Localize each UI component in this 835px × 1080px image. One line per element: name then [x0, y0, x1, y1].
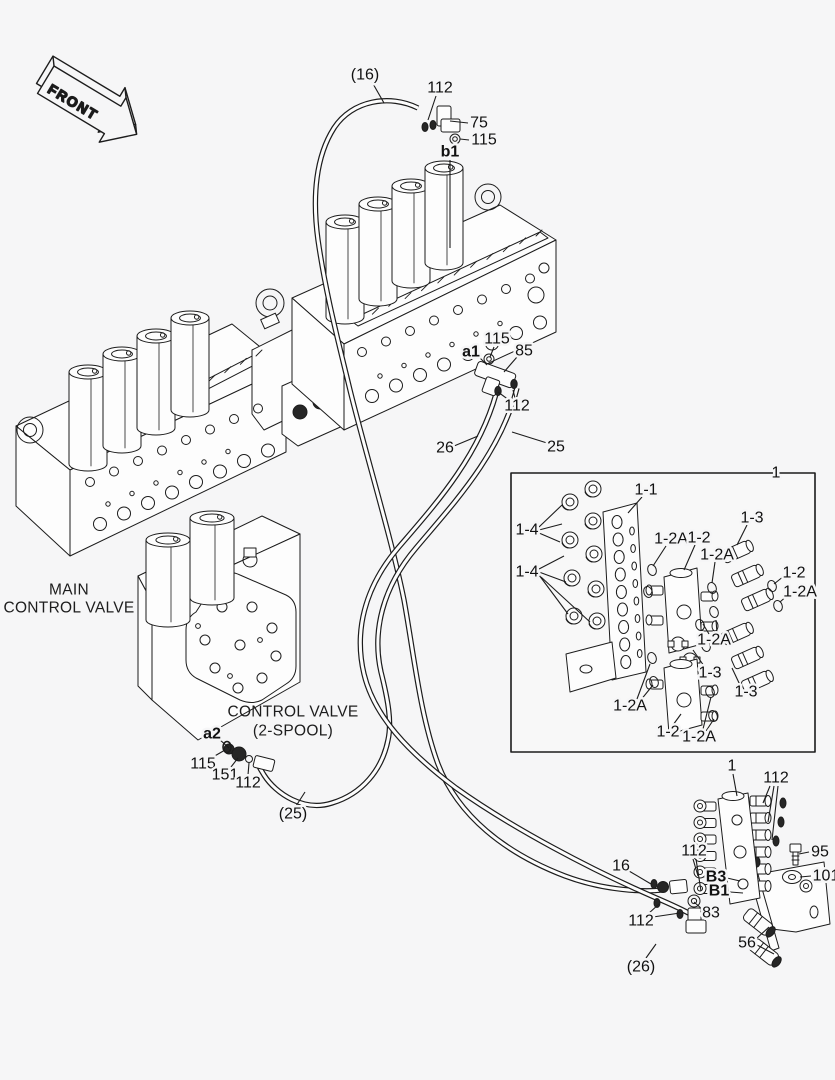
- callout-1-2A: 1-2A: [697, 632, 731, 649]
- callout-83: 83: [702, 905, 720, 922]
- callout-112: 112: [681, 843, 707, 860]
- callout-1-2: 1-2: [656, 724, 679, 741]
- callout-1-2: 1-2: [687, 530, 710, 547]
- callout-112: 112: [628, 913, 654, 930]
- valve-artwork: [16, 161, 556, 754]
- callout-112: 112: [504, 398, 530, 415]
- callout-1-4: 1-4: [515, 522, 538, 539]
- callout-26: (26): [627, 959, 655, 976]
- callout-75: 75: [470, 115, 488, 132]
- callout-b1: b1: [441, 144, 460, 161]
- main-valve-label-line1: MAIN: [49, 582, 89, 599]
- callout-1-2A: 1-2A: [700, 547, 734, 564]
- callout-95: 95: [811, 844, 829, 861]
- callout-25: 25: [547, 439, 565, 456]
- leader-line: [653, 913, 680, 917]
- leader-line: [512, 432, 547, 443]
- callout-1: 1: [728, 758, 737, 775]
- callout-112: 112: [235, 775, 261, 792]
- callout-a1: a1: [462, 344, 480, 361]
- callout-26: 26: [436, 440, 454, 457]
- callout-1-2A: 1-2A: [654, 531, 688, 548]
- leader-line: [248, 763, 249, 775]
- callout-1-3: 1-3: [698, 665, 721, 682]
- leader-line: [629, 871, 651, 884]
- callout-112: 112: [427, 80, 453, 97]
- callout-1-2A: 1-2A: [613, 698, 647, 715]
- spool-valve-label-line2: (2-SPOOL): [253, 723, 333, 740]
- callout-1-1: 1-1: [634, 482, 657, 499]
- callout-115: 115: [471, 132, 497, 149]
- washer-101: [783, 871, 802, 884]
- spool-valve-label-line1: CONTROL VALVE: [227, 704, 358, 721]
- callout-1-3: 1-3: [734, 684, 757, 701]
- leader-line: [428, 96, 436, 120]
- callout-56: 56: [738, 935, 756, 952]
- parts-diagram-page: FRONT: [0, 0, 835, 1080]
- detail-box: [511, 473, 815, 752]
- callout-1: 1: [772, 465, 781, 482]
- callout-1-2A: 1-2A: [682, 729, 716, 746]
- callout-112: 112: [763, 770, 789, 787]
- callout-1-2A: 1-2A: [783, 584, 817, 601]
- front-arrow: FRONT: [27, 47, 154, 156]
- callout-25: (25): [279, 806, 307, 823]
- callout-115: 115: [484, 331, 510, 348]
- callout-101: 101: [813, 868, 835, 885]
- diagram-canvas: FRONT: [0, 0, 835, 1080]
- callout-1-3: 1-3: [740, 510, 763, 527]
- callout-1-4: 1-4: [515, 564, 538, 581]
- main-valve-label-line2: CONTROL VALVE: [3, 600, 134, 617]
- callout-1-2: 1-2: [782, 565, 805, 582]
- leader-line: [646, 944, 656, 958]
- callout-16: 16: [612, 858, 630, 875]
- callout-B1: B1: [709, 883, 730, 900]
- callout-a2: a2: [203, 726, 221, 743]
- screw-95: [790, 844, 801, 865]
- leader-line: [460, 139, 469, 140]
- callout-16: (16): [351, 67, 379, 84]
- fitting-top-elbow: [422, 106, 460, 144]
- callout-85: 85: [515, 343, 533, 360]
